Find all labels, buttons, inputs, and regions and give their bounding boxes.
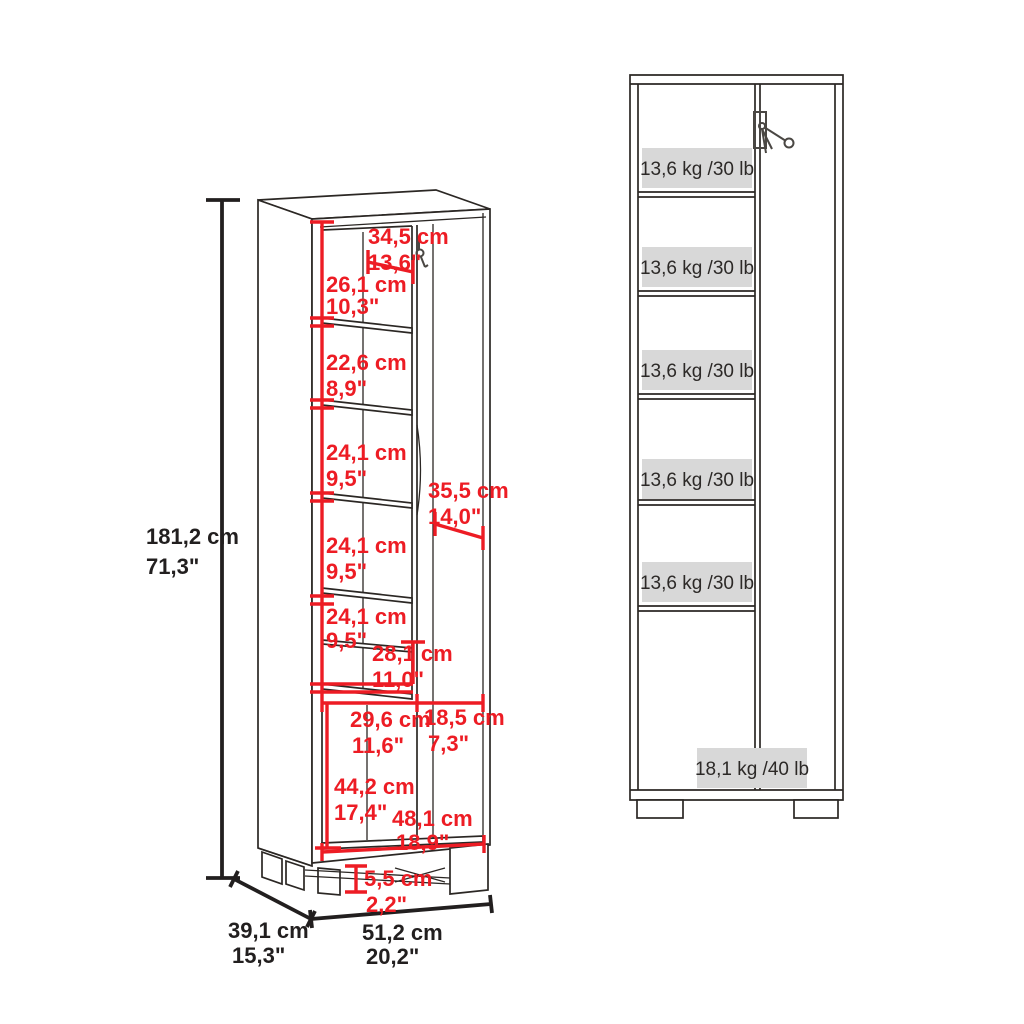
capacity-label-2: 13,6 kg /30 lb [640,258,754,279]
dim-compartment6-cm: 28,1 cm [372,641,453,666]
dim-compartment3-cm: 24,1 cm [326,440,407,465]
dim-compartment2-cm: 22,6 cm [326,350,407,375]
dim-overall-width-cm: 51,2 cm [362,920,443,945]
dim-overall-height-in: 71,3" [146,554,199,579]
dim-foot-height-cm: 5,5 cm [364,866,433,891]
dim-top-opening-width-cm: 34,5 cm [368,224,449,249]
dim-compartment5-cm: 24,1 cm [326,604,407,629]
front-view-feet [637,800,838,818]
dim-bottom-height-cm: 44,2 cm [334,774,415,799]
dim-bottom-height-in: 17,4" [334,800,387,825]
dim-compartment6-in: 11,0" [372,667,424,692]
dim-door-width-in: 14,0" [428,504,481,529]
dim-compartment4-in: 9,5" [326,559,367,584]
dim-depth-cm: 39,1 cm [228,918,309,943]
dim-compartment3-in: 9,5" [326,466,367,491]
cabinet-left-side-face [258,200,312,866]
dim-bottom-inner-width-in: 18,9" [396,830,449,855]
dim-overall-width-in: 20,2" [366,944,419,969]
dim-bottom-right-width-in: 7,3" [428,731,469,756]
dim-depth-in: 15,3" [232,943,285,968]
dim-bottom-right-width-cm: 18,5 cm [424,705,505,730]
capacity-label-3: 13,6 kg /30 lb [640,361,754,382]
capacity-label-1: 13,6 kg /30 lb [640,159,754,180]
cabinet-front-view: 13,6 kg /30 lb 13,6 kg /30 lb 13,6 kg /3… [630,75,843,818]
capacity-label-5: 13,6 kg /30 lb [640,573,754,594]
capacity-label-4: 13,6 kg /30 lb [640,470,754,491]
dim-bottom-inner-width-cm: 48,1 cm [392,806,473,831]
dim-bottom-left-width-in: 11,6" [352,733,404,758]
dim-compartment1-in: 10,3" [326,294,379,319]
dim-overall-height-cm: 181,2 cm [146,524,239,549]
dim-compartment4-cm: 24,1 cm [326,533,407,558]
capacity-label-base: 18,1 kg /40 lb [695,759,809,780]
dimension-diagram-canvas: 181,2 cm 71,3" 34,5 cm 13,6" 26,1 cm 10,… [0,0,1024,1024]
dim-foot-height-in: 2,2" [366,892,407,917]
dim-compartment2-in: 8,9" [326,376,367,401]
dim-door-width-cm: 35,5 cm [428,478,509,503]
diagram-svg: 181,2 cm 71,3" 34,5 cm 13,6" 26,1 cm 10,… [0,0,1024,1024]
dim-bottom-left-width-cm: 29,6 cm [350,707,431,732]
dim-compartment5-in: 9,5" [326,628,367,653]
